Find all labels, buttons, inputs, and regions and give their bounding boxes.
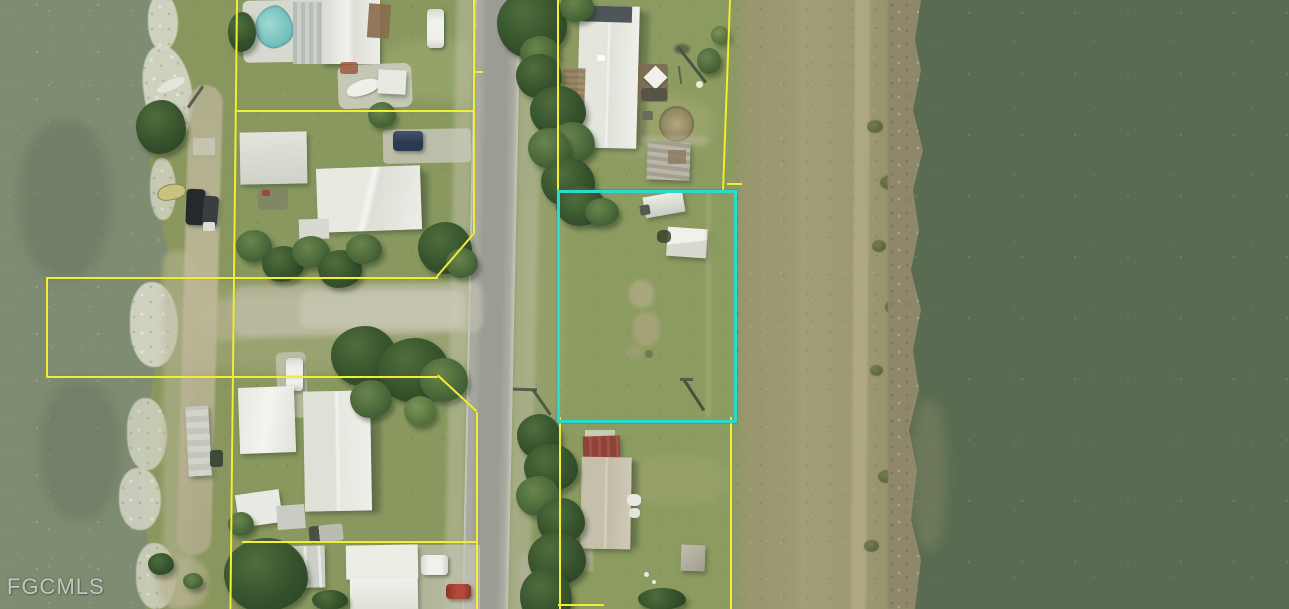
- house-roof: [350, 577, 419, 609]
- shore-brush: [867, 120, 883, 133]
- street-apron: [300, 290, 465, 328]
- shore-brush: [870, 365, 883, 376]
- parcel-boundary-line: [47, 277, 438, 279]
- tree-canopy: [183, 573, 203, 589]
- roof-vent: [597, 55, 605, 61]
- tree-canopy: [638, 588, 686, 609]
- shoreline-rocks: [119, 468, 161, 530]
- palm-canopy: [404, 396, 436, 426]
- parcel-boundary-line: [473, 0, 475, 234]
- tree-canopy: [350, 380, 392, 418]
- yard-debris: [262, 190, 270, 196]
- shed-roof: [276, 504, 306, 530]
- parcel-boundary-tick: [727, 183, 742, 185]
- water-shade: [40, 380, 120, 520]
- tree-canopy: [368, 102, 396, 128]
- tree-canopy: [312, 590, 348, 609]
- yard-debris: [642, 111, 653, 120]
- levee-texture: [731, 0, 905, 609]
- car-red: [446, 584, 471, 599]
- water-shade: [20, 120, 110, 280]
- palm-canopy: [346, 234, 382, 264]
- tree-canopy: [228, 12, 256, 52]
- trailer-home: [185, 405, 212, 476]
- car-white: [427, 9, 444, 48]
- dirt-track: [760, 60, 765, 360]
- house-roof: [346, 544, 419, 579]
- outbuilding-roof: [240, 131, 308, 184]
- white-object: [627, 494, 641, 506]
- dirt-track: [800, 0, 807, 609]
- shore-brush: [872, 240, 886, 252]
- shoreline-rocks: [127, 398, 167, 470]
- shore-brush: [864, 540, 879, 552]
- yard-debris: [641, 88, 667, 101]
- trailer-parts: [340, 62, 358, 74]
- tree-canopy: [224, 538, 308, 609]
- pole-base: [674, 44, 690, 54]
- levee-field: [731, 0, 905, 609]
- parcel-boundary-tick: [475, 71, 483, 73]
- parcel-boundary-line: [46, 277, 48, 378]
- parcel-boundary-line: [237, 110, 474, 112]
- car-white: [421, 555, 448, 575]
- parcel-boundary-line: [476, 412, 478, 609]
- white-object: [652, 580, 656, 584]
- shallow-water: [912, 400, 946, 550]
- car-dark-blue: [393, 131, 423, 151]
- carport-roof: [293, 2, 323, 64]
- parcel-boundary-line: [557, 0, 559, 192]
- tree-canopy: [148, 553, 174, 575]
- concrete-pad: [193, 138, 215, 155]
- aerial-map: FGCMLS: [0, 0, 1289, 609]
- shoreline-rocks: [148, 0, 178, 50]
- parcel-boundary-tick: [558, 604, 604, 606]
- trailer-small: [203, 222, 215, 231]
- barrel: [210, 450, 223, 467]
- lake-east: [905, 0, 1289, 609]
- parcel-boundary-line: [47, 376, 438, 378]
- house-roof: [316, 165, 422, 233]
- wood-deck: [367, 3, 391, 38]
- shed-roof: [681, 545, 706, 572]
- white-object: [696, 81, 703, 88]
- tree-canopy: [711, 26, 729, 44]
- white-object: [629, 508, 640, 518]
- subject-parcel-outline: [557, 190, 737, 423]
- parcel-boundary-line: [559, 417, 561, 609]
- parcel-boundary-line: [730, 417, 732, 609]
- white-object: [644, 572, 649, 577]
- watermark: FGCMLS: [7, 574, 105, 600]
- house-roof-tan: [580, 457, 632, 550]
- shed-rust-patch: [668, 150, 686, 164]
- tree-canopy: [697, 48, 721, 74]
- tree-canopy: [136, 100, 186, 154]
- house-roof: [238, 386, 296, 454]
- parcel-boundary-line: [242, 541, 478, 543]
- shed-roof: [377, 69, 406, 94]
- tree-canopy: [446, 248, 478, 278]
